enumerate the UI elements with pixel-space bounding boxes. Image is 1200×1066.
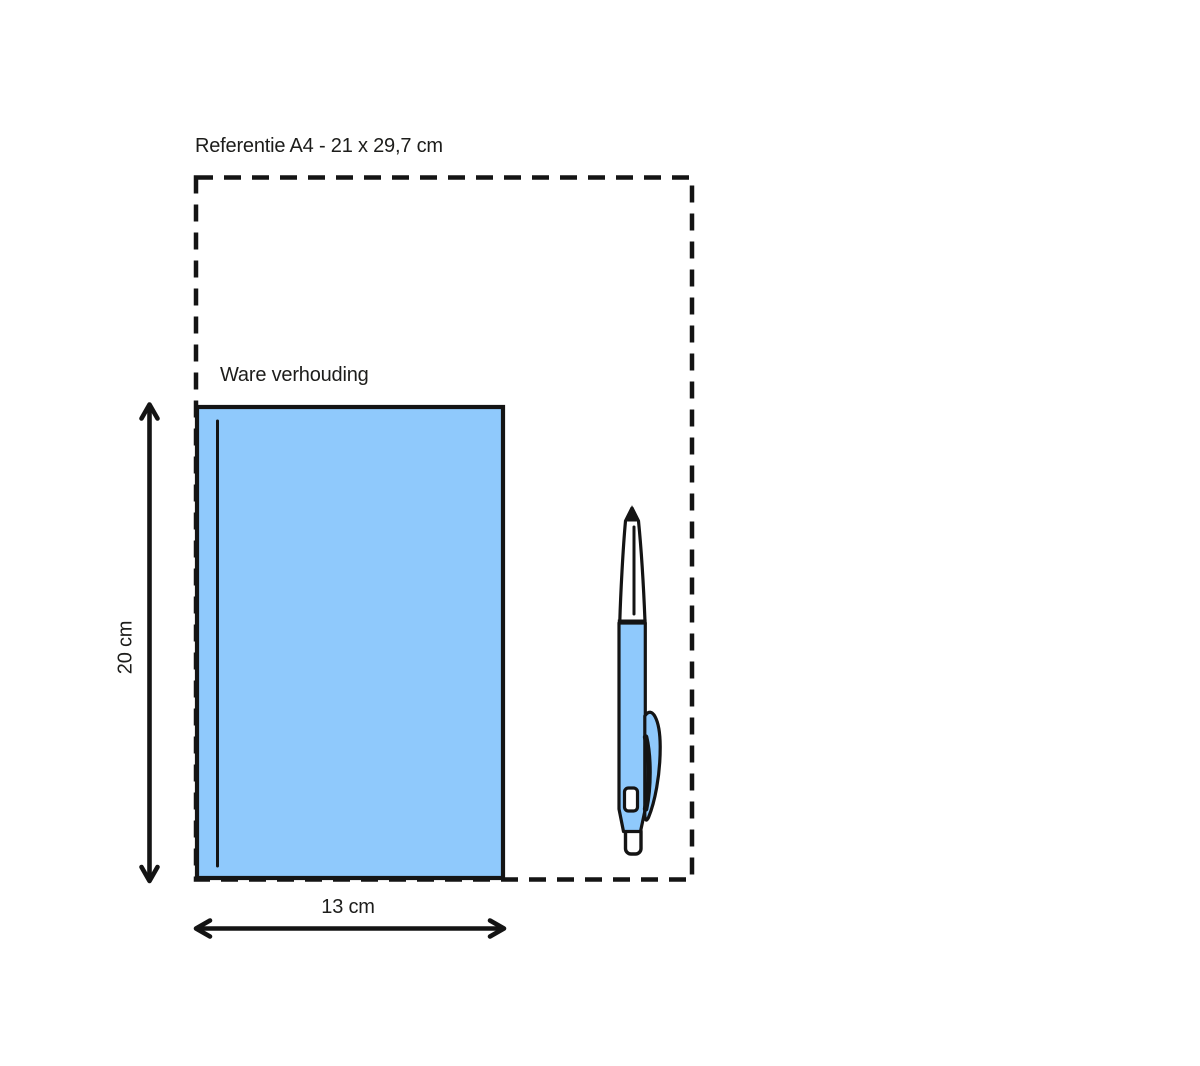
pen-hole — [625, 788, 638, 811]
width-dimension-arrow — [196, 921, 504, 937]
book-cover — [197, 407, 503, 878]
pen-cone — [620, 508, 645, 622]
diagram-canvas — [0, 0, 1200, 1066]
height-dimension-arrow — [142, 405, 158, 882]
size-comparison-diagram: Referentie A4 - 21 x 29,7 cm Ware verhou… — [0, 0, 1200, 1066]
pen-illustration — [618, 505, 660, 854]
